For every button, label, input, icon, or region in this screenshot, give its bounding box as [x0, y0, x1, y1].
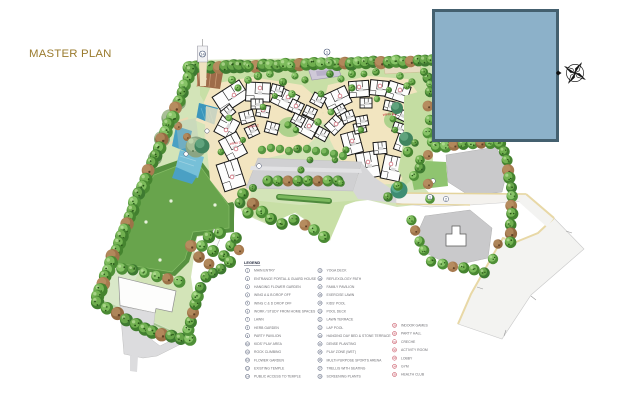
svg-text:ACTIVITY ROOM: ACTIVITY ROOM: [401, 348, 428, 352]
svg-text:ENTRANCE PORTAL & GUARD HOUSE: ENTRANCE PORTAL & GUARD HOUSE: [254, 277, 317, 281]
svg-text:FAMILY PAVILION: FAMILY PAVILION: [327, 285, 355, 289]
svg-text:14: 14: [200, 52, 205, 57]
svg-text:EXISTING TEMPLE: EXISTING TEMPLE: [254, 367, 285, 371]
svg-text:TRELLIS WITH SEATING: TRELLIS WITH SEATING: [327, 367, 366, 371]
svg-text:LAWN: LAWN: [254, 318, 264, 322]
svg-text:EXERCISE LAWN: EXERCISE LAWN: [327, 293, 355, 297]
svg-text:GYM: GYM: [401, 365, 409, 369]
svg-text:KIDS' PLAY AREA: KIDS' PLAY AREA: [254, 342, 283, 346]
svg-text:PLAY ZONE (WET): PLAY ZONE (WET): [327, 350, 356, 354]
svg-text:MAIN ENTRY: MAIN ENTRY: [254, 269, 276, 273]
svg-text:HEALTH CLUB: HEALTH CLUB: [401, 373, 425, 377]
svg-text:YOGA DECK: YOGA DECK: [327, 269, 348, 273]
svg-text:REFLEXOLOGY PATH: REFLEXOLOGY PATH: [327, 277, 362, 281]
svg-text:HERB GARDEN: HERB GARDEN: [254, 326, 279, 330]
svg-text:PARTY PAVILION: PARTY PAVILION: [254, 334, 282, 338]
svg-text:FLOWER GARDEN: FLOWER GARDEN: [254, 358, 285, 362]
svg-text:LAP POOL: LAP POOL: [327, 326, 344, 330]
svg-text:MULTI-PURPOSE SPORTS ARENA: MULTI-PURPOSE SPORTS ARENA: [327, 358, 383, 362]
svg-text:WING A & B DROP OFF: WING A & B DROP OFF: [254, 293, 291, 297]
svg-text:INDOOR GAMES: INDOOR GAMES: [401, 324, 428, 328]
svg-text:WORK / STUDY FROM HOME SPACES: WORK / STUDY FROM HOME SPACES: [254, 309, 316, 313]
svg-text:PUBLIC ACCESS TO TEMPLE: PUBLIC ACCESS TO TEMPLE: [254, 375, 302, 379]
svg-text:CRECHE: CRECHE: [401, 340, 416, 344]
svg-text:LEGEND: LEGEND: [244, 260, 260, 265]
svg-text:POOL DECK: POOL DECK: [327, 309, 347, 313]
svg-text:SCREENING PLANTS: SCREENING PLANTS: [327, 375, 362, 379]
svg-text:LAWN TERRACE: LAWN TERRACE: [327, 318, 354, 322]
svg-text:1: 1: [429, 195, 431, 199]
svg-text:HANGING FLOWER GARDEN: HANGING FLOWER GARDEN: [254, 285, 301, 289]
svg-text:LOBBY: LOBBY: [401, 356, 413, 360]
svg-text:2: 2: [445, 197, 447, 201]
svg-text:ROCK CLIMBING: ROCK CLIMBING: [254, 350, 281, 354]
svg-text:KIDS' POOL: KIDS' POOL: [327, 301, 346, 305]
svg-text:DENSE PLANTING: DENSE PLANTING: [327, 342, 357, 346]
svg-text:PARTY HALL: PARTY HALL: [401, 332, 421, 336]
svg-text:WING C & D DROP OFF: WING C & D DROP OFF: [254, 301, 292, 305]
svg-text:HANGING DAY BED & STONE TERRAC: HANGING DAY BED & STONE TERRACE: [327, 334, 392, 338]
svg-text:MASTER PLAN: MASTER PLAN: [29, 48, 112, 60]
